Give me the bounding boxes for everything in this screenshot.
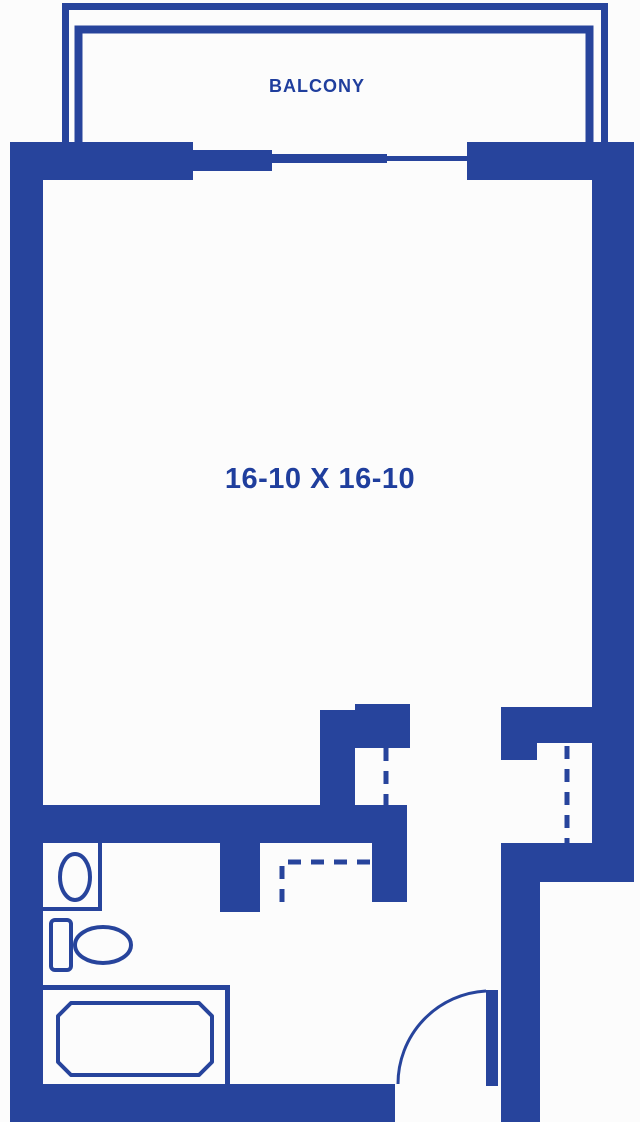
entry-side-wall: [501, 843, 540, 1122]
bathtub-icon: [58, 1003, 212, 1075]
sliding-door-panel: [272, 154, 387, 163]
bathroom-door-wall: [220, 843, 260, 912]
hall-wall: [372, 843, 407, 902]
tub-enclosure-right-wall: [225, 985, 230, 1084]
right-wall: [592, 142, 634, 882]
sink-basin-icon: [75, 927, 131, 963]
entry-door-leaf: [486, 990, 498, 1086]
left-wall: [10, 142, 43, 1122]
balcony-door-frame-left: [193, 150, 272, 171]
kitchen-wall-block: [355, 704, 410, 748]
sink-pedestal-icon: [51, 920, 71, 970]
toilet-icon: [60, 854, 90, 900]
bottom-wall: [10, 1084, 395, 1122]
balcony-label: BALCONY: [269, 76, 365, 96]
sliding-door-track: [387, 156, 467, 161]
room-dimensions-label: 16-10 X 16-10: [225, 463, 415, 495]
floor-plan: BALCONY: [0, 0, 640, 1122]
bathroom-top-wall: [30, 805, 407, 843]
floor-plan-canvas: BALCONY: [0, 0, 640, 1122]
top-wall-left: [10, 142, 193, 180]
entry-door-swing-arc: [398, 991, 486, 1084]
closet-stub-wall: [501, 707, 537, 760]
tub-enclosure-top-wall: [43, 985, 230, 990]
